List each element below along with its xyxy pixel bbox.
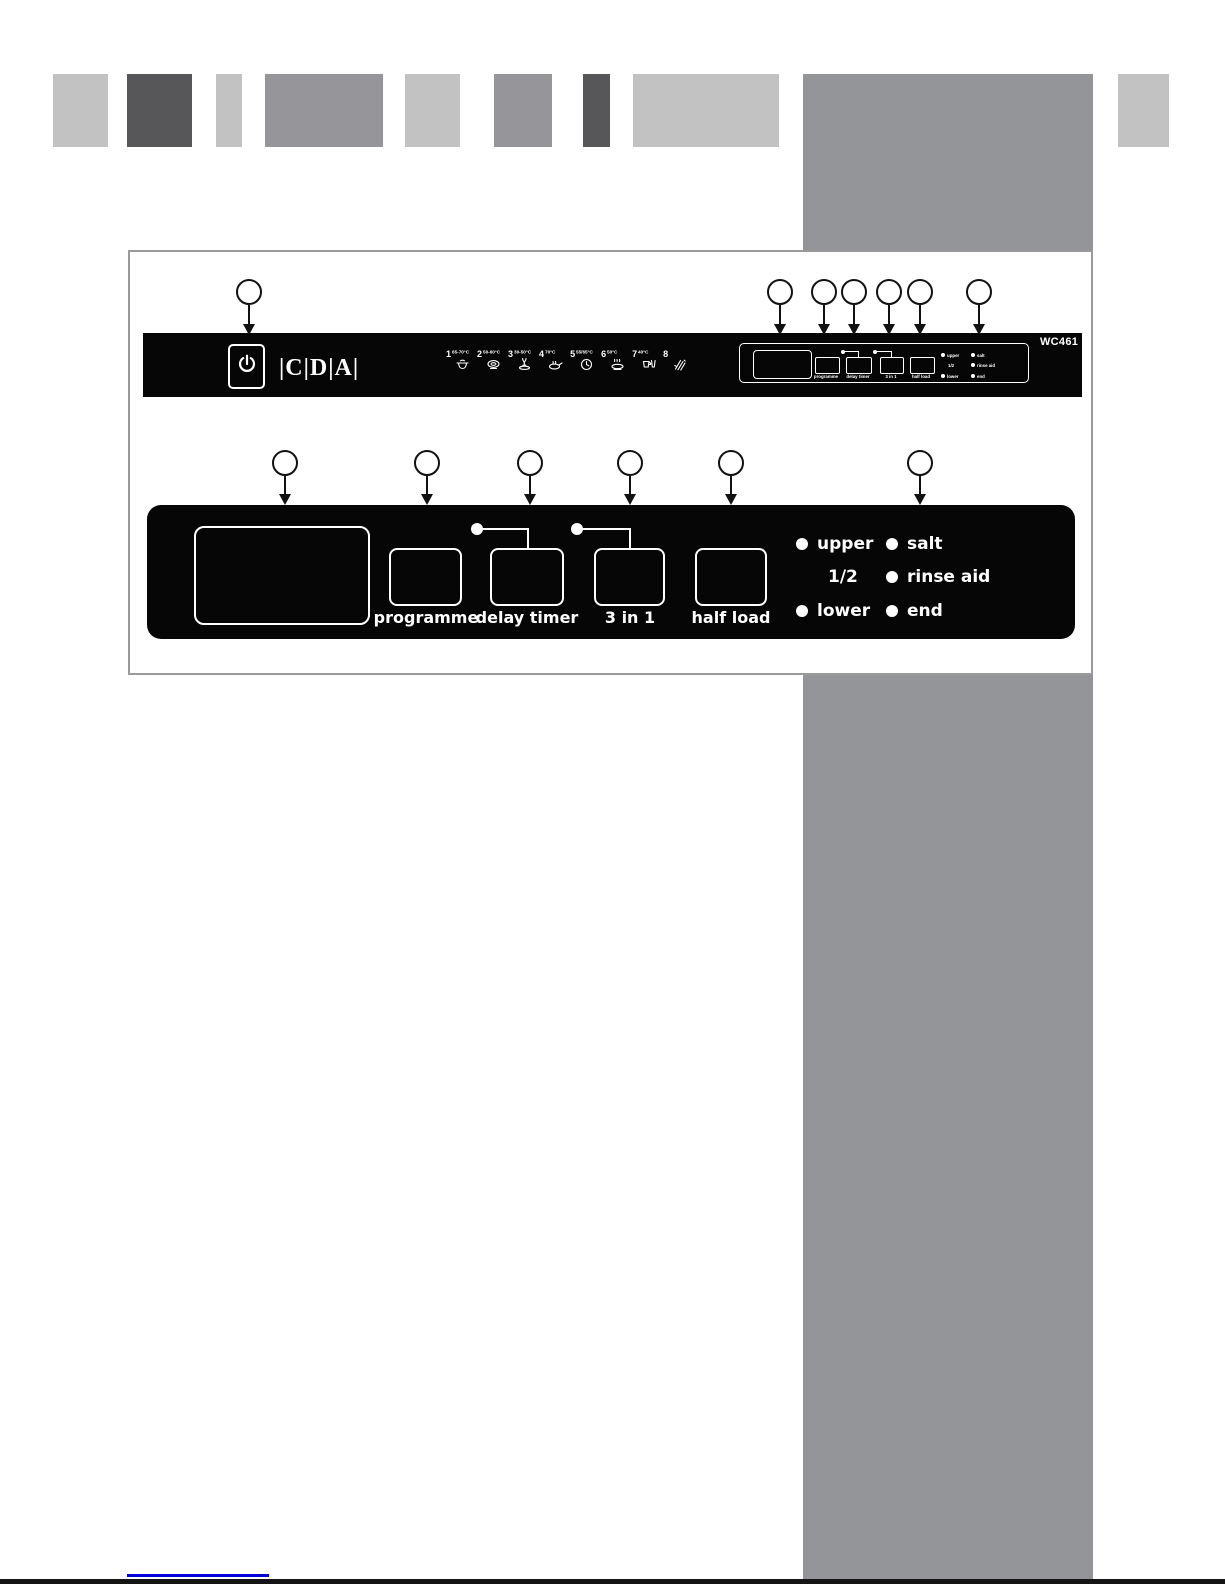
programme-item-8: 8 [663,350,690,371]
callout-circle [907,450,933,476]
programme-label-small: programme [810,374,843,379]
callout-stem [248,305,250,324]
delay-timer-button-small [846,357,872,374]
led-dot [886,605,898,617]
programme-detail: 55/65°C [576,350,597,371]
end-indicator: end [886,601,943,621]
callout-circle [841,279,867,305]
led-dot [796,538,808,550]
plate-icon [486,357,501,371]
led-dot [941,353,945,357]
callout-circle [272,450,298,476]
programme-temperature: 70°C [545,350,555,353]
arrow-down-icon [914,494,926,505]
eco-plate-icon [610,357,625,371]
delay-timer-label-small: delay timer [842,374,875,379]
programme-detail: 50°C [607,350,628,371]
programme-temperature: 65-70°C [452,350,469,353]
callout-3in1-small [876,279,902,335]
callout-circle [617,450,643,476]
programme-number: 8 [663,350,668,371]
programme-button [389,548,462,606]
control-panel-figure: |C|D|A| 165-70°C250-60°C330-50°C470°C555… [128,250,1093,675]
deco-block [405,74,460,147]
deco-block [494,74,552,147]
programme-number: 1 [446,350,451,371]
display-cluster: programme delay timer 3 in 1 half load u… [739,343,1029,383]
salt-indicator: salt [886,534,943,554]
footer-link-underline[interactable] [127,1574,269,1577]
led-dot [941,374,945,378]
programme-item-2: 250-60°C [477,350,504,371]
callout-delay-timer [517,450,543,505]
three-in-one-button-small [880,357,904,374]
callout-circle [767,279,793,305]
programme-item-6: 650°C [601,350,628,371]
programme-number: 6 [601,350,606,371]
power-button [228,344,265,389]
led-dot [886,538,898,550]
programme-detail [669,350,690,371]
callout-leds [907,450,933,505]
main-panel: programme delay timer 3 in 1 half load u… [147,505,1075,639]
salt-indicator-small: salt [971,352,991,358]
programme-detail: 50-60°C [483,350,504,371]
three-in-one-led [571,523,583,535]
pot-icon [455,357,470,371]
programme-number: 5 [570,350,575,371]
programme-item-5: 555/65°C [570,350,597,371]
rinse-hand-icon [672,357,687,371]
callout-stem [730,476,732,494]
led-bracket [583,528,631,550]
programme-temperature: 50°C [607,350,617,353]
programme-detail: 30-50°C [514,350,535,371]
display-window [194,526,370,625]
arrow-down-icon [848,324,860,335]
glass-plate-icon [517,357,532,371]
upper-indicator: upper [796,534,873,554]
callout-stem [888,305,890,324]
deco-block [216,74,242,147]
half-load-indicator: 1/2 [828,567,858,587]
programme-detail: 70°C [545,350,566,371]
programme-temperature: 50-60°C [483,350,500,353]
lower-indicator: lower [796,601,870,621]
model-number: WC461 [1040,336,1078,348]
deco-block [127,74,192,147]
delay-timer-button [490,548,564,606]
three-in-one-button [594,548,665,606]
callout-circle [236,279,262,305]
callout-circle [718,450,744,476]
callout-display-small [767,279,793,335]
callout-stem [919,476,921,494]
cup-glass-icon [641,357,656,371]
callout-stem [919,305,921,324]
arrow-down-icon [421,494,433,505]
callout-stem [823,305,825,324]
brand-logo: |C|D|A| [279,355,359,381]
callout-stem [853,305,855,324]
top-panel: |C|D|A| 165-70°C250-60°C330-50°C470°C555… [143,333,1082,397]
arrow-down-icon [624,494,636,505]
arrow-down-icon [725,494,737,505]
callout-stem [978,305,980,324]
arrow-down-icon [279,494,291,505]
delay-timer-led [471,523,483,535]
programme-item-4: 470°C [539,350,566,371]
callout-stem [529,476,531,494]
programme-item-3: 330-50°C [508,350,535,371]
programme-item-1: 165-70°C [446,350,473,371]
programme-number: 2 [477,350,482,371]
led-dot [796,605,808,617]
deco-block [53,74,108,147]
arrow-down-icon [524,494,536,505]
upper-indicator-small: upper [941,352,969,358]
arrow-down-icon [914,324,926,335]
programme-detail: 40°C [638,350,659,371]
led-dot [971,374,975,378]
programme-temperature: 30-50°C [514,350,531,353]
callout-display [272,450,298,505]
lower-indicator-small: lower [941,373,968,379]
arrow-down-icon [243,324,255,335]
programme-temperature: 40°C [638,350,648,353]
led-dot [971,353,975,357]
end-indicator-small: end [971,373,991,379]
half-load-button-small [910,357,935,374]
manual-page: |C|D|A| 165-70°C250-60°C330-50°C470°C555… [0,0,1225,1585]
half-load-button [695,548,767,606]
programme-detail: 65-70°C [452,350,473,371]
programme-number: 3 [508,350,513,371]
callout-circle [907,279,933,305]
callout-programme-small [811,279,837,335]
callout-stem [284,476,286,494]
callout-halfload-small [907,279,933,335]
callout-3in1 [617,450,643,505]
arrow-down-icon [883,324,895,335]
pan-icon [548,357,563,371]
led-bracket [843,351,859,358]
three-in-one-label-small: 3 in 1 [875,374,908,379]
callout-leds-small [966,279,992,335]
callout-stem [426,476,428,494]
display-window-small [753,350,812,379]
led-bracket [875,351,892,358]
power-icon [236,353,258,380]
programme-button-small [815,357,840,374]
deco-block [583,74,610,147]
callout-delay-small [841,279,867,335]
rinse-aid-indicator-small: rinse aid [971,362,1010,368]
callout-circle [811,279,837,305]
rinse-aid-indicator: rinse aid [886,567,990,587]
callout-circle [876,279,902,305]
half-indicator-small: 1/2 [948,362,959,368]
half-load-label: half load [666,608,796,627]
led-dot [971,363,975,367]
deco-block [265,74,383,147]
arrow-down-icon [973,324,985,335]
led-dot [886,571,898,583]
programme-temperature: 55/65°C [576,350,593,353]
callout-circle [966,279,992,305]
callout-power [236,279,262,335]
callout-stem [629,476,631,494]
callout-half-load [718,450,744,505]
callout-circle [414,450,440,476]
deco-block [633,74,779,147]
page-bottom-rule [0,1579,1225,1584]
programme-number: 7 [632,350,637,371]
callout-circle [517,450,543,476]
led-bracket [483,528,529,550]
arrow-down-icon [774,324,786,335]
clock-icon [579,357,594,371]
arrow-down-icon [818,324,830,335]
callout-programme [414,450,440,505]
programme-list: 165-70°C250-60°C330-50°C470°C555/65°C650… [446,350,690,371]
deco-block [1118,74,1169,147]
programme-number: 4 [539,350,544,371]
programme-item-7: 740°C [632,350,659,371]
half-load-label-small: half load [905,374,938,379]
callout-stem [779,305,781,324]
